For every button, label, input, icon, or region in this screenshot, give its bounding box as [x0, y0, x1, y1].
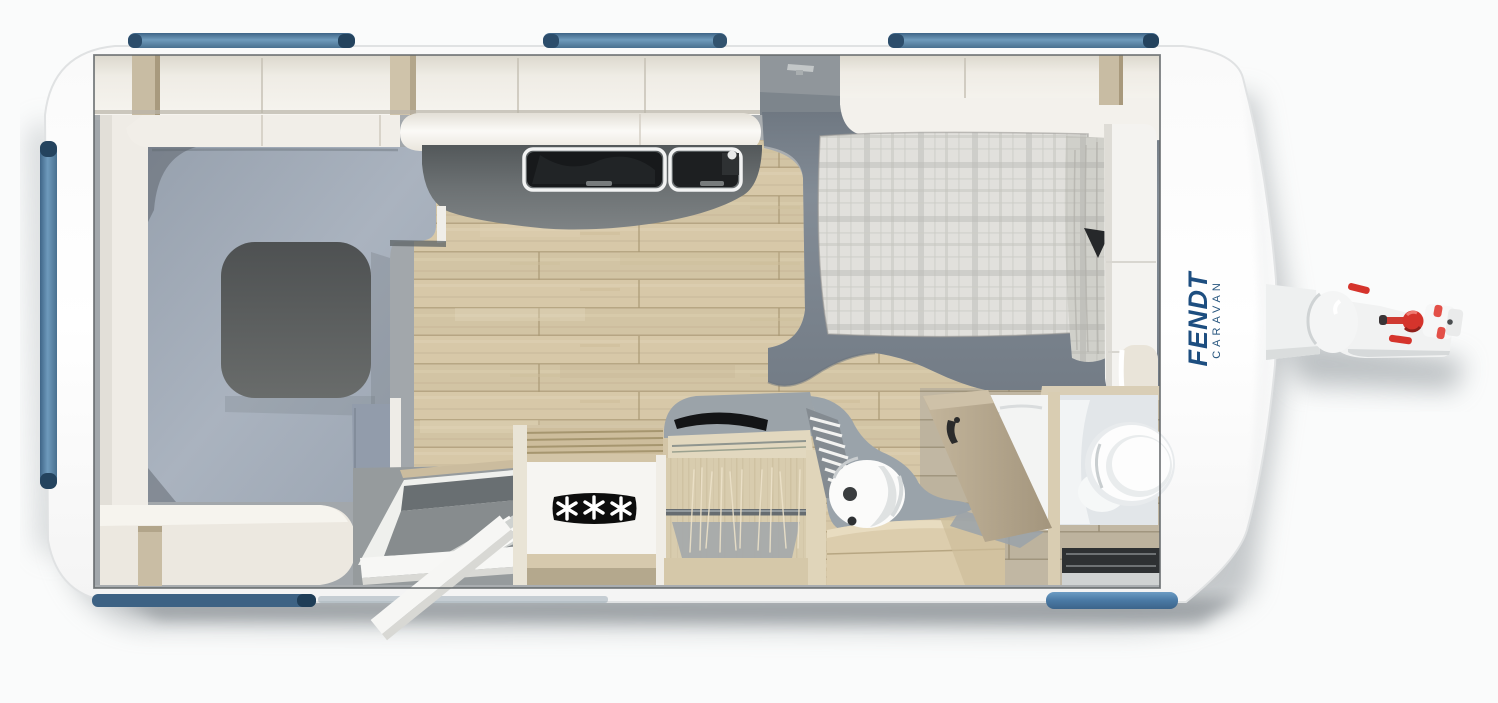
svg-text:CARAVAN: CARAVAN — [1211, 279, 1223, 359]
svg-text:FENDT: FENDT — [1183, 270, 1213, 366]
